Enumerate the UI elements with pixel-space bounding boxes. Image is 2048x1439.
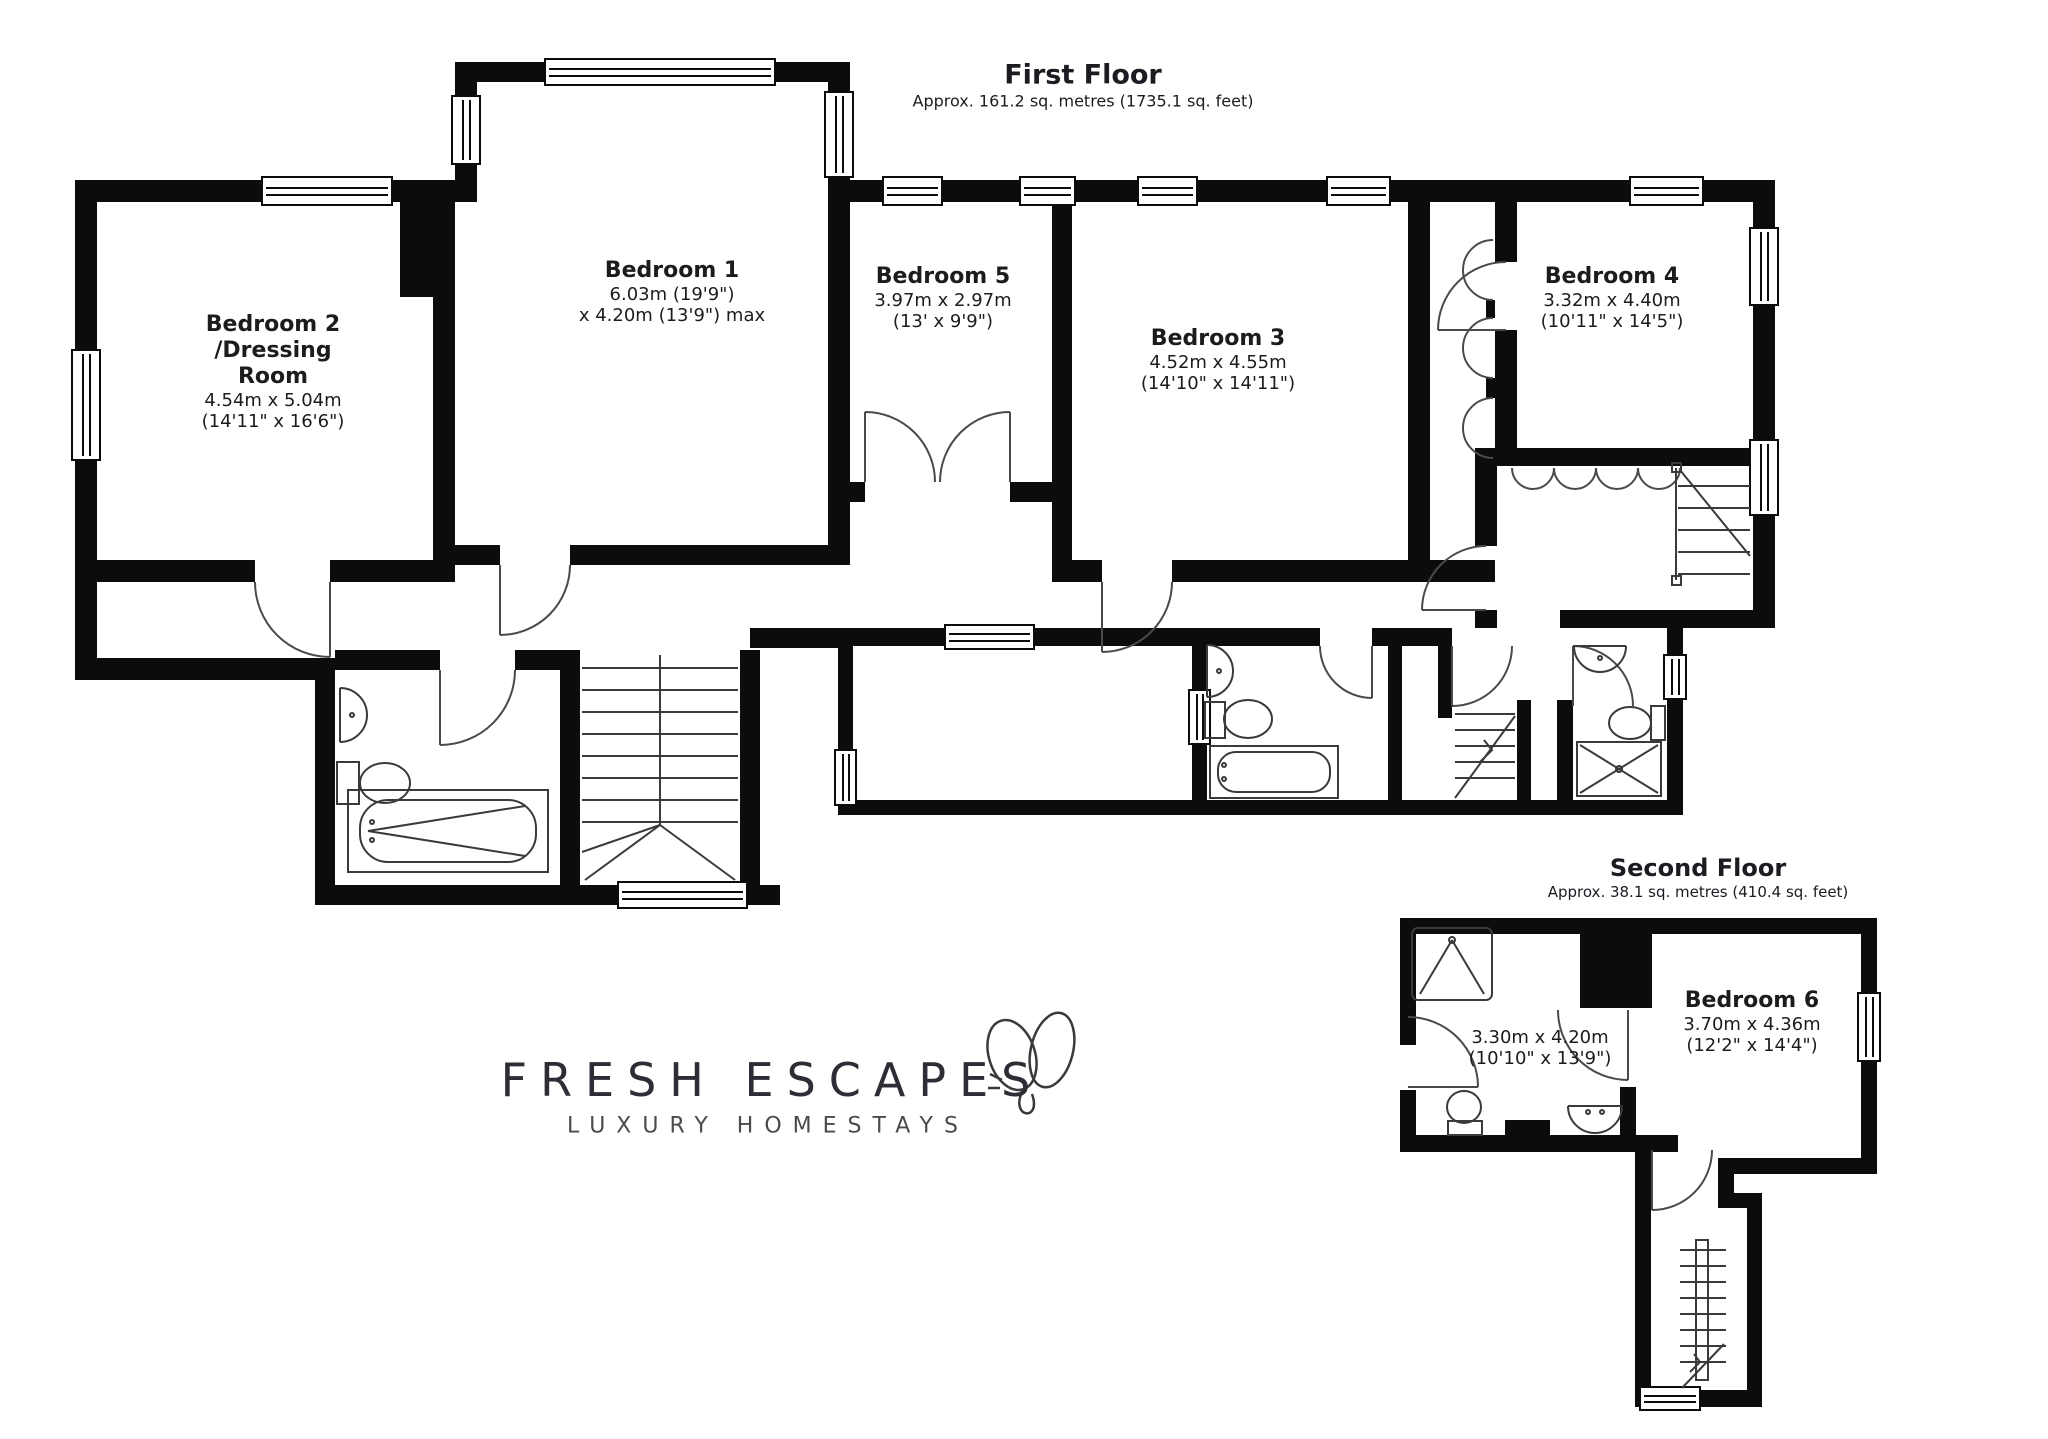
window-icon [545, 59, 775, 85]
sink-icon [340, 688, 367, 742]
bathtub-icon [348, 790, 548, 872]
window-icon [1750, 440, 1778, 515]
window-icon [835, 750, 856, 805]
room-label-second-floor-bathroom: 3.30m x 4.20m (10'10" x 13'9") [1469, 1027, 1612, 1069]
room-label-bedroom-5: Bedroom 5 3.97m x 2.97m (13' x 9'9") [874, 264, 1011, 332]
window-icon [1750, 228, 1778, 305]
window-icon [618, 882, 747, 908]
sink-icon [1568, 1106, 1622, 1133]
first-floor-title: First Floor [1004, 60, 1162, 91]
window-icon [1138, 177, 1197, 205]
room-label-bedroom-2: Bedroom 2 /Dressing Room 4.54m x 5.04m (… [202, 312, 345, 432]
staircase-landing [1672, 463, 1750, 585]
staircase-second-floor [1680, 1240, 1726, 1388]
window-icon [262, 177, 392, 205]
room-label-bedroom-6: Bedroom 6 3.70m x 4.36m (12'2" x 14'4") [1683, 988, 1820, 1056]
shower-icon [1412, 928, 1492, 1000]
second-floor-title: Second Floor [1610, 854, 1786, 882]
staircase-small [1455, 714, 1515, 798]
window-icon [945, 625, 1034, 649]
shower-icon [1577, 742, 1661, 796]
window-icon [1020, 177, 1075, 205]
window-icon [1640, 1387, 1700, 1410]
windows [72, 59, 1880, 1410]
room-label-bedroom-1: Bedroom 1 6.03m (19'9") x 4.20m (13'9") … [579, 258, 765, 326]
window-icon [825, 92, 853, 177]
floor-plan-drawing [0, 0, 2048, 1439]
toilet-icon [1205, 700, 1272, 738]
toilet-icon [1609, 706, 1665, 740]
window-icon [452, 96, 480, 164]
room-label-bedroom-3: Bedroom 3 4.52m x 4.55m (14'10" x 14'11"… [1141, 326, 1295, 394]
window-icon [1327, 177, 1390, 205]
first-floor-area: Approx. 161.2 sq. metres (1735.1 sq. fee… [913, 92, 1254, 111]
window-icon [1858, 993, 1880, 1061]
second-floor-area: Approx. 38.1 sq. metres (410.4 sq. feet) [1548, 883, 1849, 901]
sink-icon [1574, 646, 1626, 672]
window-icon [1189, 690, 1210, 744]
window-icon [1664, 655, 1686, 699]
logo-tagline: LUXURY HOMESTAYS [567, 1114, 969, 1139]
logo-name: FRESH ESCAPES [501, 1053, 1044, 1107]
room-label-bedroom-4: Bedroom 4 3.32m x 4.40m (10'11" x 14'5") [1541, 264, 1684, 332]
staircase-main [582, 655, 738, 880]
window-icon [1630, 177, 1703, 205]
floorplan-page: First Floor Approx. 161.2 sq. metres (17… [0, 0, 2048, 1439]
window-icon [883, 177, 942, 205]
toilet-icon [1447, 1091, 1482, 1135]
window-icon [72, 350, 100, 460]
bathtub-icon [1210, 746, 1338, 798]
